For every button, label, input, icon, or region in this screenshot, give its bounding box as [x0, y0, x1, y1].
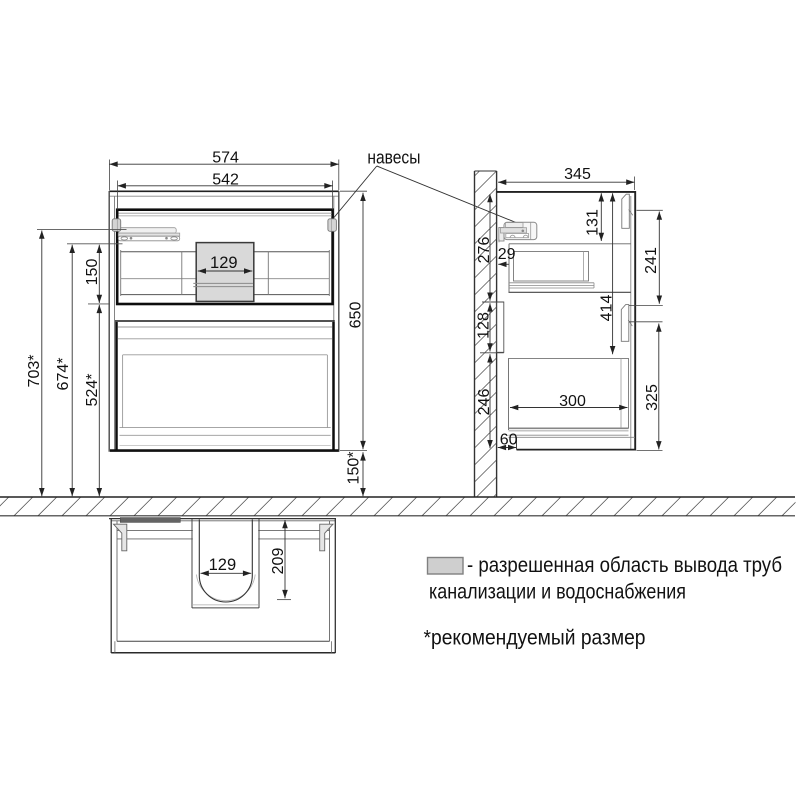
svg-text:276: 276	[476, 237, 493, 264]
svg-text:674*: 674*	[55, 358, 72, 391]
svg-text:703*: 703*	[26, 355, 43, 388]
svg-text:навесы: навесы	[367, 147, 420, 168]
svg-text:650: 650	[347, 302, 364, 329]
svg-text:150: 150	[84, 259, 101, 286]
svg-text:60: 60	[500, 432, 518, 449]
svg-text:574: 574	[212, 150, 239, 167]
svg-text:209: 209	[270, 548, 287, 575]
svg-text:128: 128	[475, 312, 492, 339]
svg-text:29: 29	[498, 246, 516, 263]
svg-text:241: 241	[643, 247, 660, 274]
svg-text:542: 542	[212, 171, 239, 188]
svg-text:150*: 150*	[345, 452, 362, 485]
svg-text:канализации и водоснабжения: канализации и водоснабжения	[429, 581, 686, 604]
svg-text:345: 345	[564, 166, 591, 183]
svg-text:129: 129	[209, 556, 237, 574]
svg-text:246: 246	[476, 389, 493, 416]
svg-text:414: 414	[598, 295, 615, 322]
svg-text:300: 300	[559, 393, 586, 410]
svg-text:129: 129	[210, 254, 238, 272]
svg-text:*рекомендуемый размер: *рекомендуемый размер	[424, 626, 646, 649]
svg-text:- разрешенная область вывода т: - разрешенная область вывода труб	[467, 554, 782, 577]
svg-text:524*: 524*	[84, 374, 101, 407]
svg-text:131: 131	[584, 209, 601, 236]
svg-text:325: 325	[644, 384, 661, 411]
